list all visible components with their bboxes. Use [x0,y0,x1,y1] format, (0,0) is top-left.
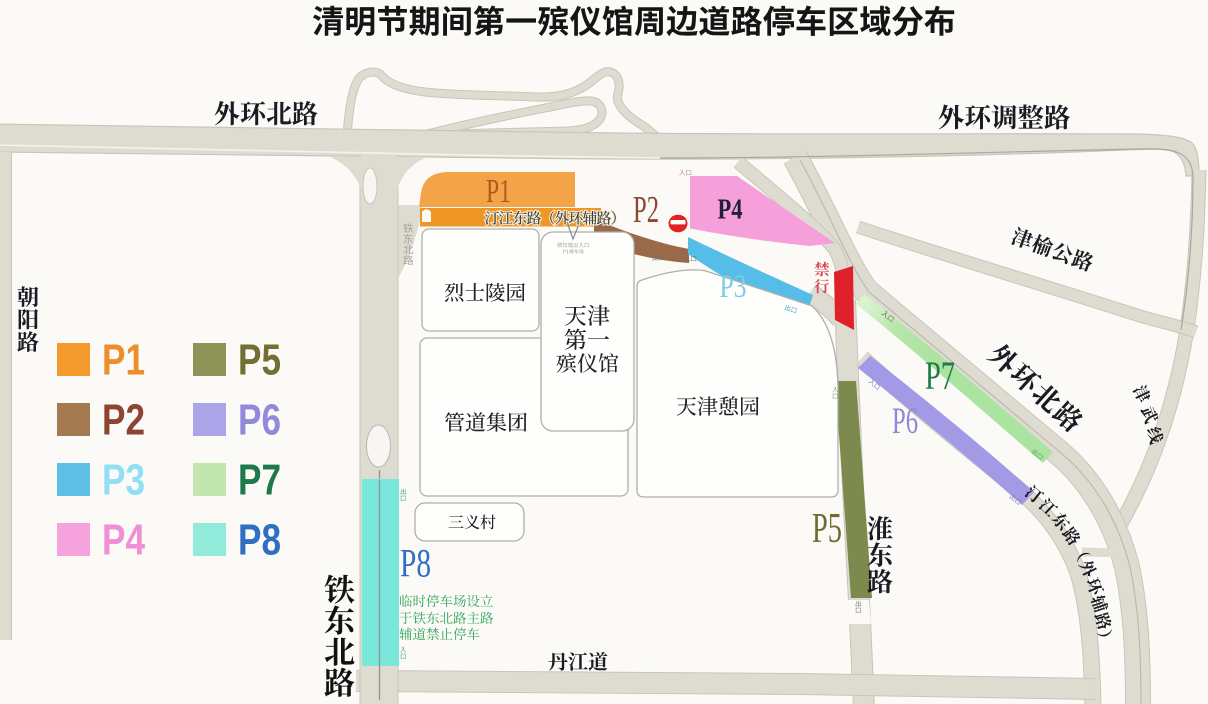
svg-text:P4: P4 [718,195,743,226]
svg-text:P5: P5 [812,506,842,552]
svg-text:P1: P1 [486,173,511,210]
svg-text:P2: P2 [102,396,145,445]
svg-text:P2: P2 [633,189,659,231]
svg-text:P8: P8 [400,541,431,586]
svg-text:P3: P3 [720,269,747,305]
svg-text:P7: P7 [238,456,281,505]
svg-text:P1: P1 [102,336,145,385]
svg-text:P3: P3 [102,456,145,505]
svg-text:P8: P8 [238,516,281,565]
svg-text:P7: P7 [925,353,955,398]
svg-text:P5: P5 [238,336,281,385]
svg-text:P4: P4 [102,516,145,565]
svg-text:P6: P6 [238,396,281,445]
svg-text:P6: P6 [892,401,918,442]
